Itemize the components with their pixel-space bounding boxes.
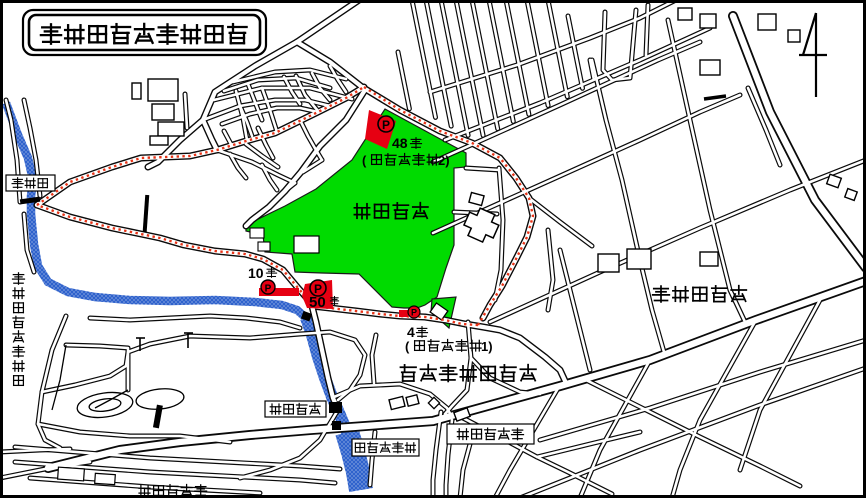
svg-text:48: 48	[392, 135, 408, 151]
svg-text:P: P	[411, 308, 417, 318]
svg-text:P: P	[382, 118, 390, 132]
svg-text:10: 10	[248, 265, 264, 281]
svg-text:2): 2)	[438, 153, 450, 168]
svg-text:1): 1)	[481, 339, 493, 354]
svg-text:(: (	[405, 339, 410, 354]
svg-text:P: P	[265, 283, 272, 294]
svg-text:50: 50	[309, 294, 326, 311]
svg-text:4: 4	[407, 324, 415, 340]
svg-text:(: (	[362, 153, 367, 168]
